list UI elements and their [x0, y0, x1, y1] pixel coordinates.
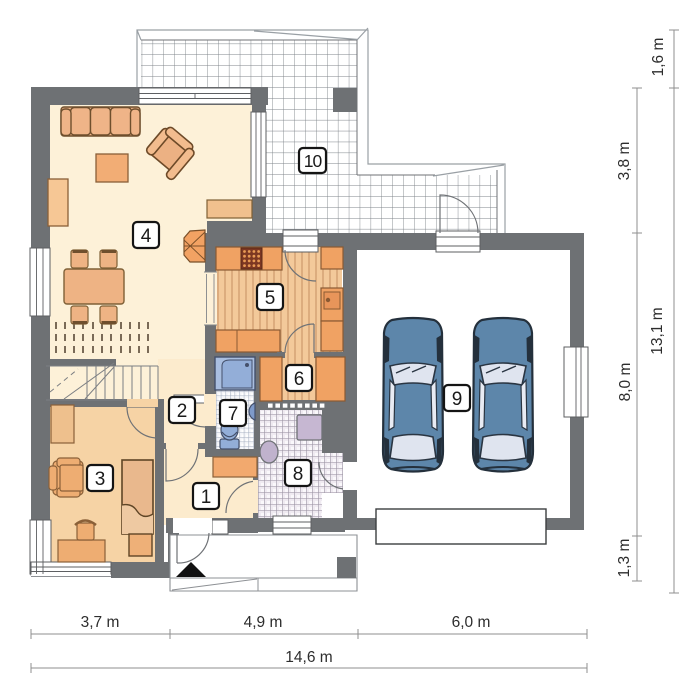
svg-text:1,6 m: 1,6 m: [650, 38, 667, 77]
svg-text:14,6 m: 14,6 m: [285, 649, 332, 666]
svg-text:6,0 m: 6,0 m: [452, 614, 491, 631]
svg-text:5: 5: [265, 288, 276, 309]
svg-text:3,8 m: 3,8 m: [616, 142, 633, 181]
svg-text:3: 3: [95, 469, 106, 490]
svg-text:6: 6: [294, 369, 305, 390]
svg-text:1,3 m: 1,3 m: [616, 539, 633, 578]
svg-text:8,0 m: 8,0 m: [617, 363, 634, 402]
svg-text:3,7 m: 3,7 m: [81, 614, 120, 631]
svg-text:9: 9: [452, 389, 463, 410]
svg-text:2: 2: [177, 401, 188, 422]
svg-text:7: 7: [228, 404, 239, 425]
svg-text:8: 8: [293, 464, 304, 485]
svg-text:10: 10: [304, 151, 323, 171]
svg-text:4,9 m: 4,9 m: [244, 614, 283, 631]
svg-text:4: 4: [141, 226, 152, 247]
svg-text:1: 1: [201, 487, 212, 508]
svg-text:13,1 m: 13,1 m: [649, 307, 666, 354]
